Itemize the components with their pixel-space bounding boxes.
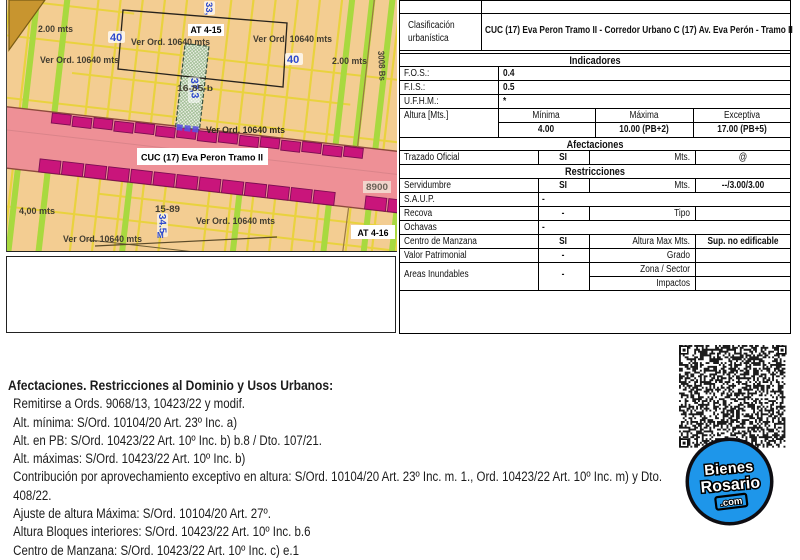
svg-text:AT 4-15: AT 4-15 (191, 25, 222, 35)
svg-text:Ver Ord. 10640 mts: Ver Ord. 10640 mts (253, 34, 332, 45)
svg-text:40: 40 (110, 32, 122, 44)
svg-text:3008 Bs: 3008 Bs (376, 51, 388, 81)
svg-text:Ver Ord. 10640 mts: Ver Ord. 10640 mts (40, 55, 119, 66)
svg-text:2.00 mts: 2.00 mts (332, 56, 367, 67)
svg-text:AT 4-16: AT 4-16 (358, 228, 389, 239)
svg-text:16-85-b: 16-85-b (177, 83, 213, 93)
svg-text:40: 40 (287, 54, 299, 66)
svg-text:33,: 33, (203, 2, 214, 15)
svg-text:CUC (17) Eva Peron Tramo II: CUC (17) Eva Peron Tramo II (141, 153, 263, 164)
svg-text:Ver Ord. 10640 mts: Ver Ord. 10640 mts (206, 125, 285, 136)
svg-text:4,00 mts: 4,00 mts (19, 206, 55, 217)
svg-text:2.00 mts: 2.00 mts (38, 24, 73, 35)
svg-text:Ver Ord. 10640 mts: Ver Ord. 10640 mts (131, 37, 210, 48)
svg-text:Ver Ord. 10640 mts: Ver Ord. 10640 mts (63, 234, 142, 245)
svg-text:8900: 8900 (366, 182, 388, 193)
svg-text:M: M (157, 231, 164, 240)
svg-text:Ver Ord. 10640 mts: Ver Ord. 10640 mts (196, 216, 275, 227)
